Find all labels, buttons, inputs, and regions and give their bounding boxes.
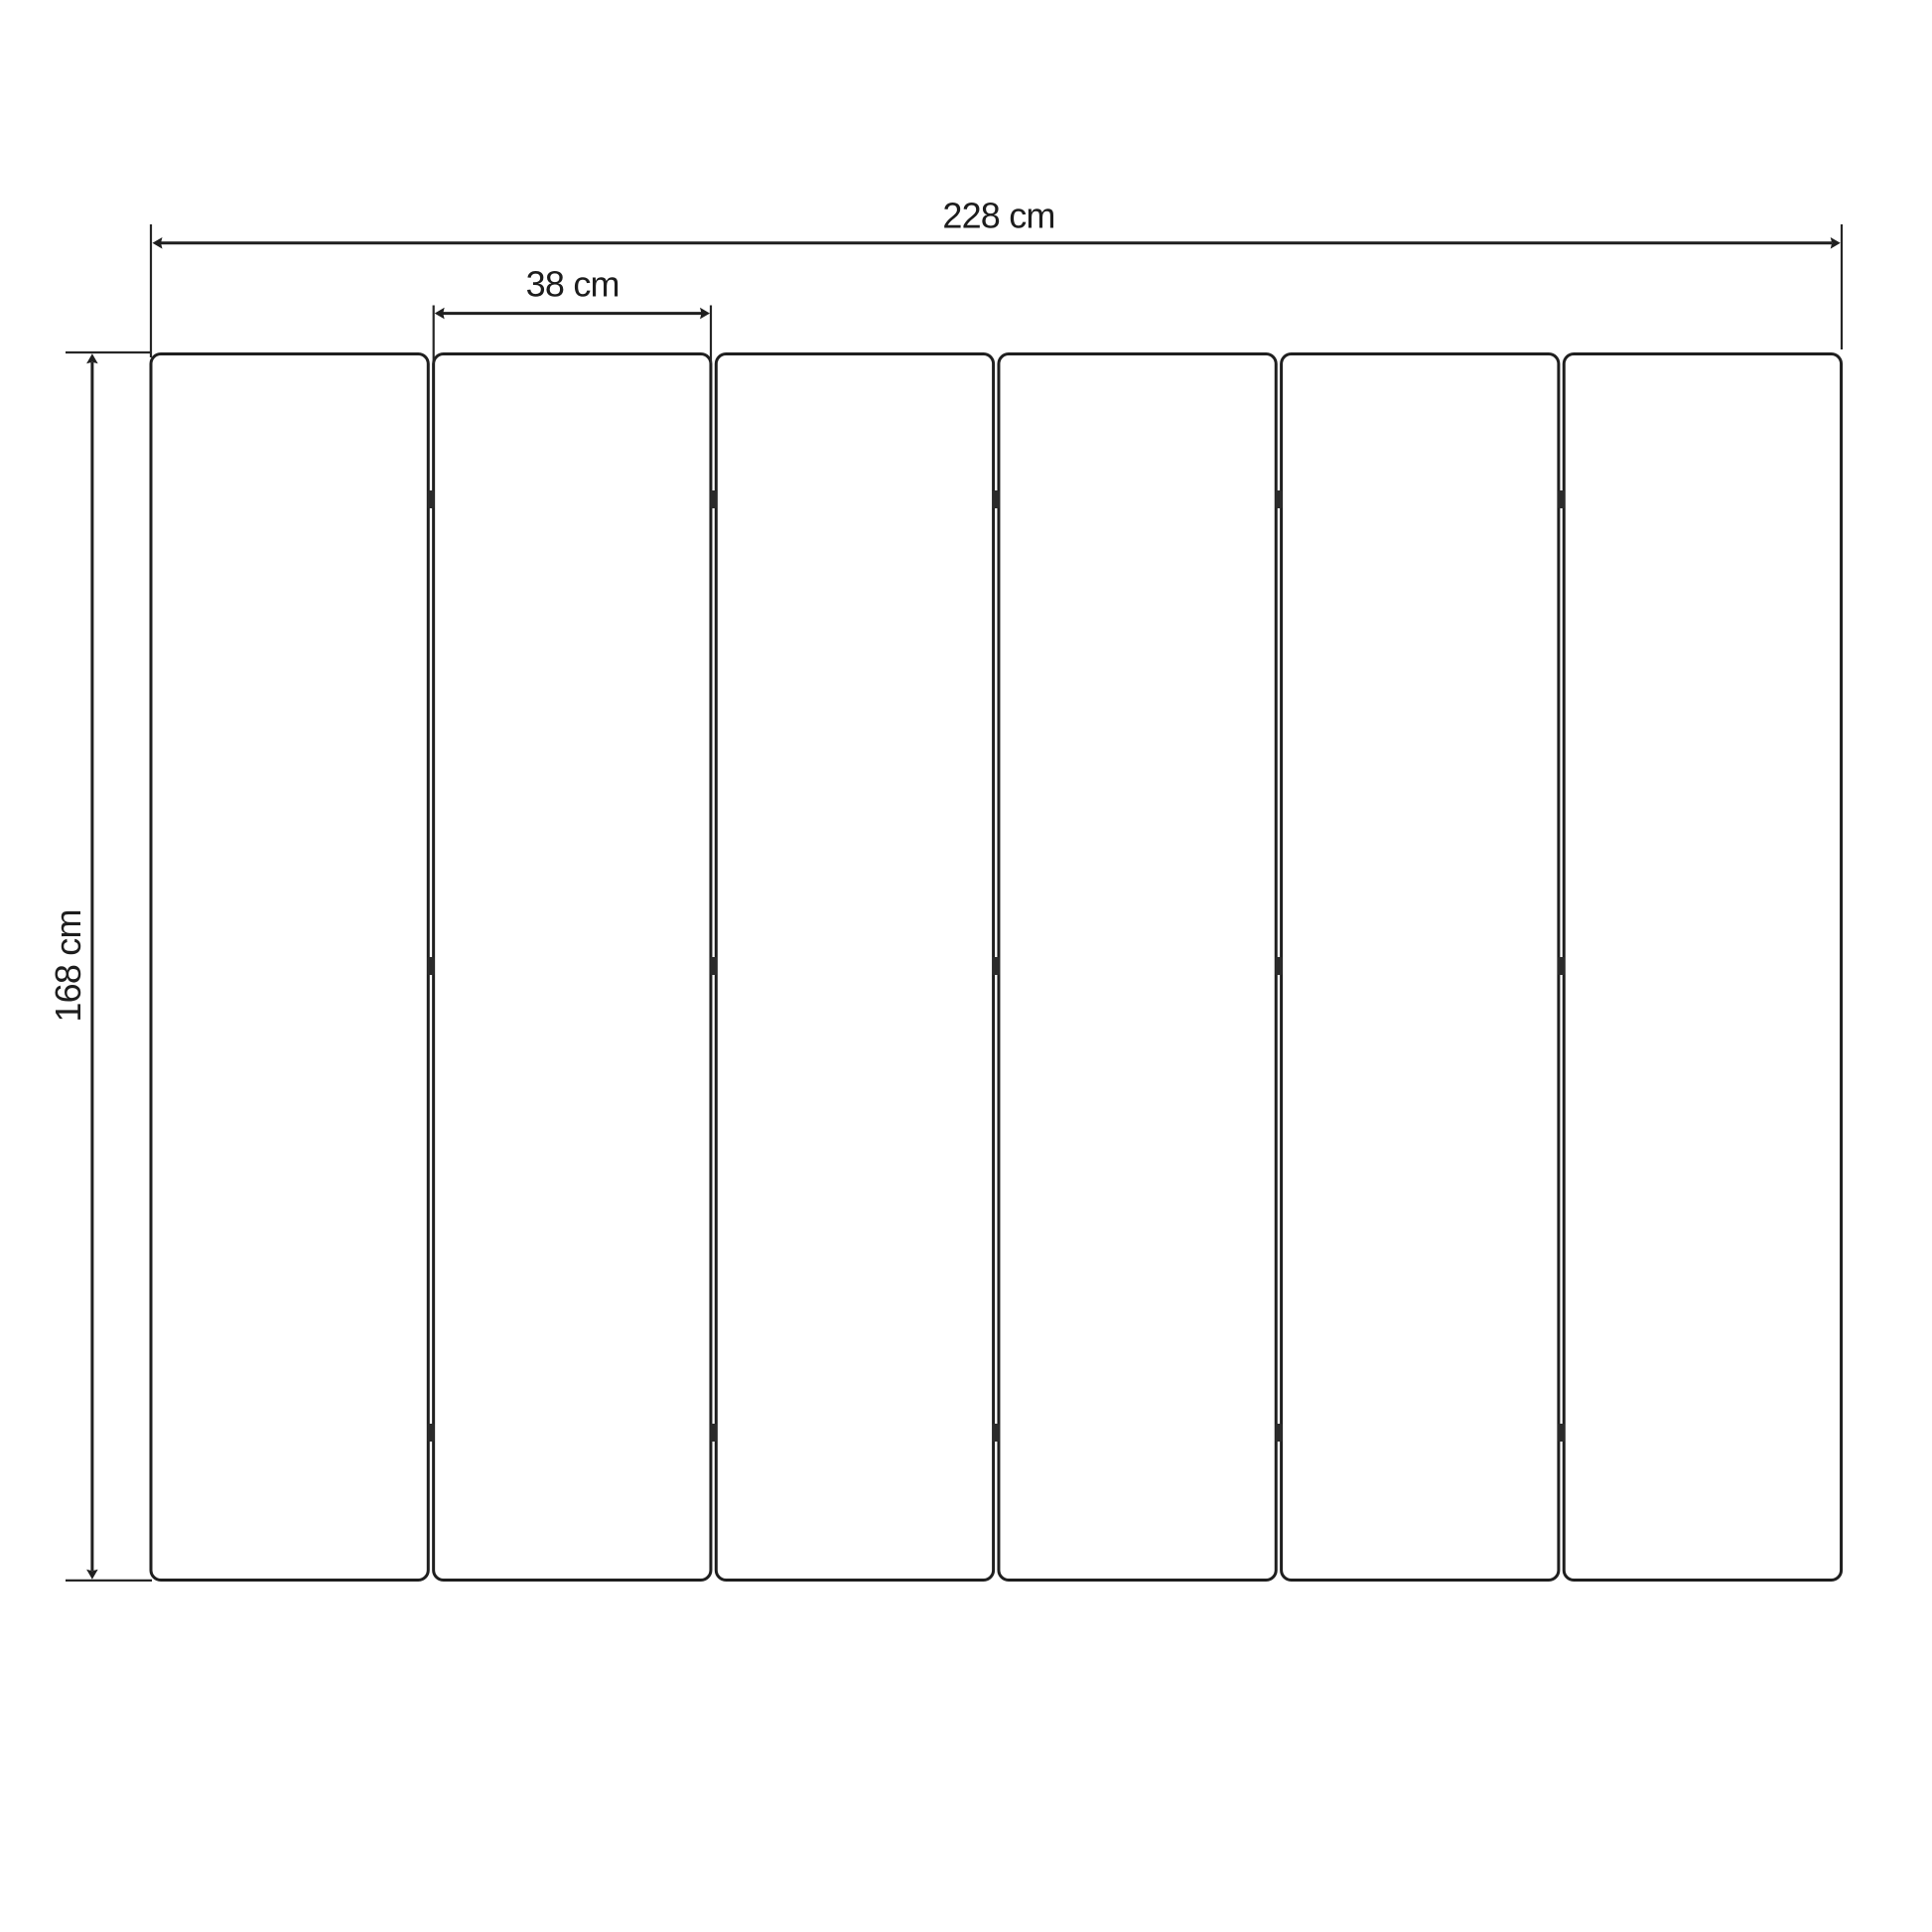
svg-text:38 cm: 38 cm bbox=[526, 263, 620, 304]
svg-text:168 cm: 168 cm bbox=[48, 909, 88, 1022]
svg-text:228 cm: 228 cm bbox=[942, 196, 1054, 236]
